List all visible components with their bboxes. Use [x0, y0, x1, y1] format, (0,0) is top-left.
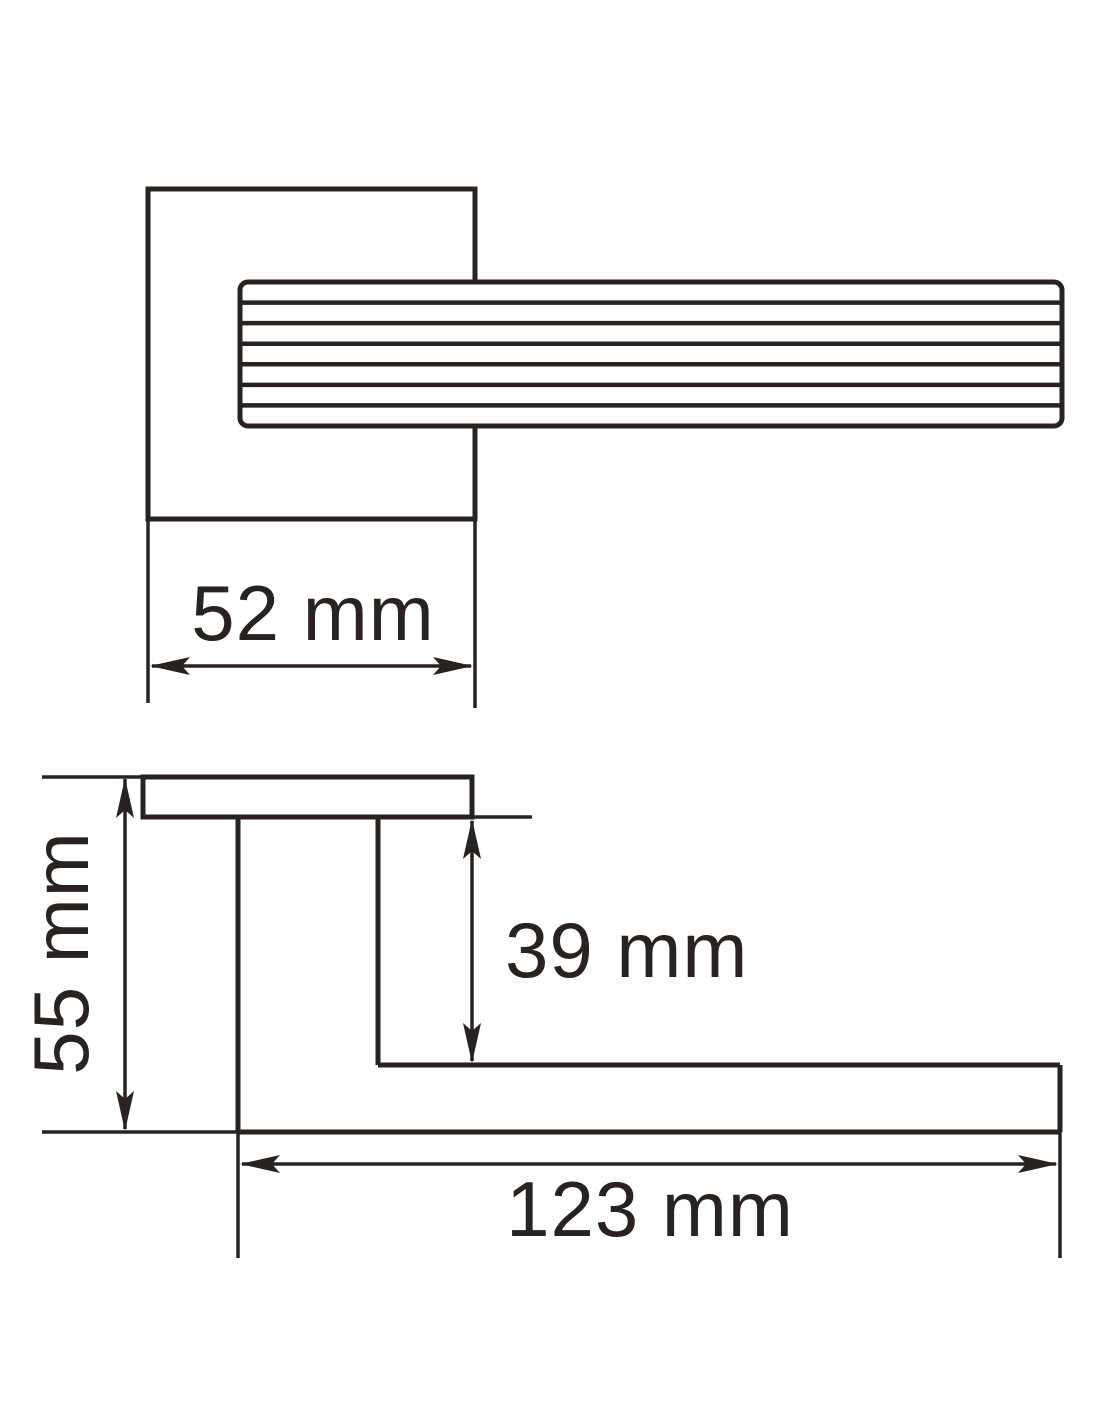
dim-123-label: 123 mm: [506, 1165, 794, 1253]
front-view: 52 mm: [148, 189, 1062, 708]
dim-52-label: 52 mm: [191, 569, 434, 657]
dim-55-label: 55 mm: [17, 831, 105, 1074]
technical-drawing-canvas: 52 mm 55 mm: [0, 0, 1100, 1422]
handle-dimension-drawing: 52 mm 55 mm: [0, 0, 1100, 1422]
dim-39-label: 39 mm: [505, 906, 748, 994]
plate-side-outline: [143, 777, 472, 817]
side-view: 55 mm 39 mm 123 mm: [17, 777, 1060, 1258]
